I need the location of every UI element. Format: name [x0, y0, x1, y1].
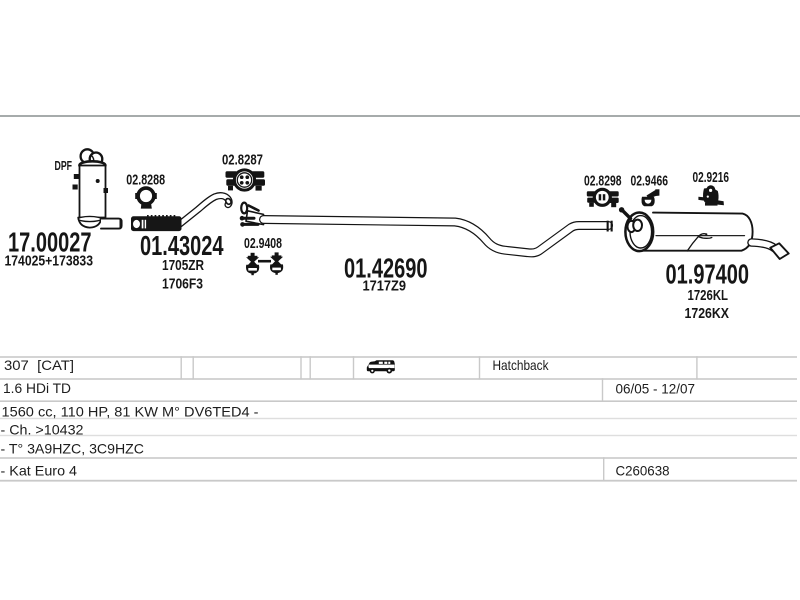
- svg-text:- Kat Euro 4: - Kat Euro 4: [1, 463, 78, 479]
- svg-text:1705ZR: 1705ZR: [162, 257, 204, 274]
- svg-text:174025+173833: 174025+173833: [5, 252, 94, 269]
- svg-text:307 [CAT]: 307 [CAT]: [4, 357, 74, 373]
- svg-text:C260638: C260638: [616, 463, 670, 479]
- svg-text:02.9408: 02.9408: [244, 236, 282, 252]
- svg-text:02.8287: 02.8287: [222, 152, 263, 168]
- svg-text:- Ch. >10432: - Ch. >10432: [1, 421, 84, 437]
- svg-text:1717Z9: 1717Z9: [363, 277, 407, 294]
- svg-text:Hatchback: Hatchback: [493, 357, 550, 373]
- svg-text:01.97400: 01.97400: [666, 259, 750, 290]
- svg-text:1.6 HDi TD: 1.6 HDi TD: [3, 380, 71, 396]
- svg-text:02.9466: 02.9466: [631, 173, 669, 189]
- svg-text:1726KL: 1726KL: [688, 287, 729, 304]
- svg-text:02.8298: 02.8298: [584, 173, 622, 189]
- svg-text:1706F3: 1706F3: [162, 276, 203, 293]
- svg-text:1560 cc, 110 HP, 81 KW M° DV6T: 1560 cc, 110 HP, 81 KW M° DV6TED4 -: [2, 404, 259, 420]
- svg-text:- T° 3A9HZC, 3C9HZC: - T° 3A9HZC, 3C9HZC: [1, 441, 145, 457]
- svg-text:02.9216: 02.9216: [693, 170, 730, 186]
- svg-text:DPF: DPF: [55, 158, 73, 173]
- svg-text:06/05 - 12/07: 06/05 - 12/07: [616, 380, 696, 396]
- svg-text:1726KX: 1726KX: [685, 305, 730, 322]
- svg-text:02.8288: 02.8288: [126, 173, 165, 189]
